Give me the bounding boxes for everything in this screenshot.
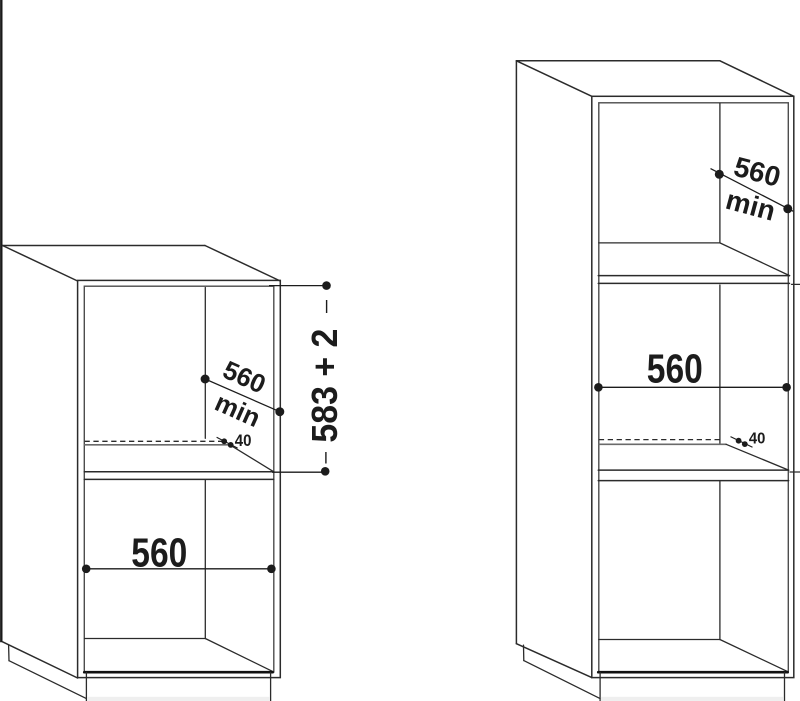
- svg-text:583 + 2: 583 + 2: [304, 329, 345, 443]
- svg-text:560: 560: [131, 529, 187, 575]
- svg-text:40: 40: [749, 430, 766, 447]
- svg-text:40: 40: [235, 432, 252, 450]
- svg-text:560: 560: [647, 346, 703, 392]
